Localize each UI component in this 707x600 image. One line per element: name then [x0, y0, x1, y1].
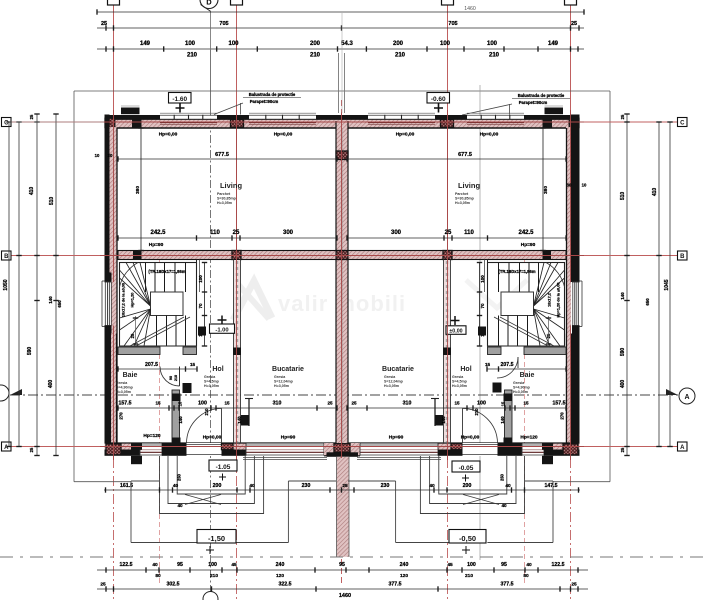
svg-text:H=3,05m: H=3,05m — [452, 384, 467, 388]
svg-text:H=3,05m: H=3,05m — [513, 390, 528, 394]
svg-text:45: 45 — [231, 562, 237, 568]
svg-text:A: A — [680, 445, 685, 451]
svg-text:380: 380 — [543, 186, 549, 194]
svg-text:Hp=90: Hp=90 — [521, 242, 536, 248]
svg-text:650: 650 — [645, 298, 650, 306]
svg-text:310: 310 — [403, 401, 412, 407]
svg-text:1045: 1045 — [664, 279, 670, 290]
svg-text:242.5: 242.5 — [150, 230, 166, 236]
svg-text:120: 120 — [400, 573, 408, 579]
svg-text:590: 590 — [27, 347, 33, 356]
svg-text:(TR.18Dx17=1,86m: (TR.18Dx17=1,86m — [498, 269, 535, 274]
svg-text:Bucatarie: Bucatarie — [272, 366, 304, 373]
svg-text:157.5: 157.5 — [553, 401, 566, 407]
svg-text:40: 40 — [177, 503, 183, 508]
svg-text:400: 400 — [48, 380, 54, 389]
svg-text:110: 110 — [210, 230, 220, 236]
svg-text:100: 100 — [487, 41, 498, 47]
svg-text:H=3,05m: H=3,05m — [217, 201, 232, 205]
svg-text:H=3,05m: H=3,05m — [274, 384, 289, 388]
svg-text:210: 210 — [395, 53, 406, 59]
svg-text:Parapet=90cm: Parapet=90cm — [519, 100, 548, 105]
svg-text:45: 45 — [447, 562, 453, 568]
svg-text:1460: 1460 — [464, 6, 476, 12]
svg-text:140: 140 — [237, 416, 242, 424]
svg-text:54.3: 54.3 — [341, 41, 353, 47]
svg-text:10: 10 — [95, 153, 100, 158]
svg-text:Hol: Hol — [212, 366, 223, 373]
svg-text:Hp=0,00: Hp=0,00 — [480, 132, 499, 138]
svg-text:Hp=120: Hp=120 — [520, 435, 538, 441]
svg-text:100: 100 — [185, 41, 196, 47]
svg-text:270: 270 — [560, 412, 565, 420]
svg-text:-1,50: -1,50 — [208, 534, 225, 543]
svg-text:Gresia: Gresia — [204, 375, 216, 379]
svg-text:377.5: 377.5 — [501, 582, 514, 588]
svg-text:147.5: 147.5 — [545, 483, 558, 489]
svg-text:Hp=90: Hp=90 — [149, 242, 164, 248]
svg-text:200: 200 — [463, 483, 472, 489]
svg-text:15: 15 — [523, 401, 529, 406]
svg-text:25: 25 — [620, 447, 625, 452]
svg-text:-1.00: -1.00 — [215, 328, 228, 334]
svg-text:Gresia: Gresia — [452, 375, 464, 379]
svg-text:Gresia: Gresia — [116, 381, 128, 385]
svg-text:-0.05: -0.05 — [459, 465, 474, 472]
svg-text:207.5: 207.5 — [145, 362, 158, 368]
svg-text:70: 70 — [480, 303, 485, 309]
svg-text:25: 25 — [130, 333, 135, 338]
svg-text:Parchet: Parchet — [455, 192, 469, 196]
svg-text:200: 200 — [213, 483, 222, 489]
svg-text:122.5: 122.5 — [552, 562, 565, 568]
svg-text:15: 15 — [224, 401, 230, 406]
svg-text:25: 25 — [342, 483, 348, 489]
svg-text:15: 15 — [190, 362, 196, 367]
svg-text:Living: Living — [220, 181, 243, 190]
svg-text:302.5: 302.5 — [167, 582, 180, 588]
svg-text:95: 95 — [177, 562, 183, 568]
svg-text:Hp=0,00: Hp=0,00 — [396, 132, 415, 138]
svg-text:242.5: 242.5 — [518, 230, 534, 236]
svg-text:25: 25 — [620, 114, 625, 119]
svg-text:210: 210 — [204, 408, 209, 416]
svg-text:90: 90 — [169, 376, 173, 380]
svg-text:Hp=120: Hp=120 — [143, 433, 161, 439]
svg-text:H=3,05m: H=3,05m — [384, 384, 399, 388]
svg-text:Balustrada de protectie: Balustrada de protectie — [249, 92, 296, 97]
svg-text:25: 25 — [101, 21, 107, 27]
svg-text:250: 250 — [500, 473, 505, 481]
svg-text:S=4,5mp: S=4,5mp — [452, 380, 468, 384]
svg-text:Baie: Baie — [123, 372, 138, 379]
svg-text:95: 95 — [339, 562, 345, 568]
svg-text:300: 300 — [391, 230, 402, 236]
svg-text:40: 40 — [249, 483, 255, 489]
svg-text:250: 250 — [177, 473, 182, 481]
svg-text:650: 650 — [57, 300, 62, 308]
svg-text:510: 510 — [620, 192, 626, 201]
svg-text:Hp=0,00: Hp=0,00 — [461, 435, 480, 441]
svg-text:149: 149 — [140, 41, 151, 47]
svg-text:200: 200 — [310, 41, 321, 47]
svg-text:30: 30 — [567, 183, 572, 188]
svg-text:310: 310 — [273, 401, 282, 407]
svg-text:110: 110 — [464, 230, 474, 236]
svg-text:B: B — [4, 254, 9, 260]
svg-text:100: 100 — [198, 275, 203, 283]
svg-text:D: D — [206, 0, 212, 7]
svg-text:25: 25 — [29, 447, 34, 452]
svg-text:100: 100 — [440, 41, 451, 47]
svg-text:210: 210 — [310, 53, 321, 59]
svg-text:Parapet=90cm: Parapet=90cm — [250, 99, 279, 104]
svg-text:H=3,05m: H=3,05m — [455, 201, 470, 205]
svg-text:15: 15 — [485, 362, 491, 367]
svg-text:40: 40 — [173, 483, 179, 489]
svg-text:100: 100 — [467, 562, 476, 568]
svg-text:(TR.18Dx17=1,86m: (TR.18Dx17=1,86m — [148, 269, 185, 274]
svg-text:149: 149 — [548, 41, 559, 47]
svg-text:230: 230 — [302, 483, 311, 489]
svg-text:157.5: 157.5 — [119, 401, 132, 407]
svg-text:210: 210 — [474, 408, 479, 416]
svg-text:Balustrada de protectie: Balustrada de protectie — [518, 93, 565, 98]
svg-text:400: 400 — [620, 380, 626, 389]
svg-text:Bucatarie: Bucatarie — [382, 366, 414, 373]
svg-text:Hp=1,20: Hp=1,20 — [131, 293, 135, 308]
svg-text:Hol: Hol — [460, 366, 471, 373]
svg-text:140: 140 — [441, 416, 446, 424]
svg-text:18x17,2: 18x17,2 — [548, 293, 552, 307]
svg-text:200: 200 — [393, 41, 404, 47]
svg-text:Hp=90: Hp=90 — [281, 435, 296, 441]
svg-text:100: 100 — [228, 41, 239, 47]
svg-text:140: 140 — [620, 292, 625, 300]
svg-text:210: 210 — [465, 573, 473, 579]
svg-text:25: 25 — [445, 230, 452, 236]
svg-text:140: 140 — [48, 296, 53, 304]
svg-text:100: 100 — [480, 275, 485, 283]
svg-text:H=3,05m: H=3,05m — [116, 390, 131, 394]
svg-text:300: 300 — [283, 230, 294, 236]
svg-text:A: A — [684, 394, 689, 401]
svg-text:270: 270 — [119, 412, 124, 420]
svg-text:H=3,05m: H=3,05m — [204, 384, 219, 388]
svg-text:Baie: Baie — [520, 372, 535, 379]
svg-text:15: 15 — [178, 401, 183, 406]
svg-text:Hp=90: Hp=90 — [389, 435, 404, 441]
svg-text:100: 100 — [198, 401, 207, 407]
svg-text:210: 210 — [489, 53, 500, 59]
svg-text:30: 30 — [108, 153, 113, 158]
svg-text:25: 25 — [351, 401, 357, 406]
svg-text:377.5: 377.5 — [389, 582, 402, 588]
svg-text:25: 25 — [29, 114, 34, 119]
svg-text:S=30,85mp: S=30,85mp — [455, 197, 475, 201]
svg-text:C: C — [680, 121, 685, 127]
svg-text:705: 705 — [219, 21, 228, 27]
svg-text:410: 410 — [652, 188, 658, 197]
svg-text:210: 210 — [187, 53, 198, 59]
svg-text:Hp=0,00: Hp=0,00 — [159, 132, 178, 138]
svg-text:210: 210 — [174, 375, 178, 381]
svg-text:80: 80 — [155, 573, 161, 579]
svg-text:S=12,04mp: S=12,04mp — [274, 380, 294, 384]
svg-text:S=30,85mp: S=30,85mp — [217, 197, 237, 201]
svg-text:25: 25 — [233, 230, 240, 236]
svg-text:Hp=1,20 de la ±0,00: Hp=1,20 de la ±0,00 — [557, 283, 561, 318]
svg-text:677.5: 677.5 — [215, 152, 229, 158]
svg-text:100: 100 — [208, 562, 217, 568]
svg-text:120: 120 — [276, 573, 284, 579]
svg-text:25: 25 — [100, 582, 106, 588]
svg-text:40: 40 — [429, 483, 435, 489]
svg-text:-1.60: -1.60 — [172, 96, 187, 103]
svg-text:1050: 1050 — [3, 279, 9, 290]
svg-text:B: B — [680, 254, 685, 260]
svg-text:15: 15 — [454, 401, 460, 406]
svg-text:410: 410 — [29, 187, 35, 196]
svg-text:S=4,90mp: S=4,90mp — [116, 386, 134, 390]
svg-text:705: 705 — [448, 21, 457, 27]
svg-text:±0,00: ±0,00 — [449, 329, 462, 335]
svg-text:140: 140 — [500, 416, 505, 424]
svg-text:Parchet: Parchet — [217, 192, 231, 196]
svg-text:S=12,04mp: S=12,04mp — [384, 380, 404, 384]
svg-text:15: 15 — [155, 401, 161, 406]
svg-text:-0,50: -0,50 — [459, 534, 476, 543]
svg-text:Hp=0,00: Hp=0,00 — [274, 132, 293, 138]
svg-text:70: 70 — [198, 303, 203, 309]
svg-text:207.5: 207.5 — [501, 362, 514, 368]
svg-text:80: 80 — [523, 573, 529, 579]
svg-text:240: 240 — [400, 562, 409, 568]
svg-text:S=4,90mp: S=4,90mp — [513, 386, 531, 390]
svg-text:10: 10 — [582, 183, 587, 188]
svg-text:Gresia: Gresia — [384, 375, 396, 379]
svg-text:18x17,2 de la ±0,00: 18x17,2 de la ±0,00 — [122, 283, 126, 317]
svg-text:230: 230 — [381, 483, 390, 489]
svg-text:677.5: 677.5 — [458, 152, 472, 158]
svg-text:40: 40 — [526, 562, 532, 568]
svg-text:380: 380 — [135, 186, 141, 194]
svg-text:140: 140 — [178, 416, 183, 424]
svg-text:Hp=0,00: Hp=0,00 — [203, 435, 222, 441]
svg-text:Gresia: Gresia — [274, 375, 286, 379]
svg-text:1460: 1460 — [339, 593, 351, 599]
svg-text:100: 100 — [477, 401, 486, 407]
svg-text:322.5: 322.5 — [279, 582, 292, 588]
svg-text:S=4,5mp: S=4,5mp — [204, 380, 220, 384]
svg-text:25: 25 — [571, 582, 577, 588]
svg-text:40: 40 — [501, 503, 507, 508]
svg-text:510: 510 — [49, 197, 55, 206]
svg-text:240: 240 — [276, 562, 285, 568]
svg-text:-1.05: -1.05 — [216, 464, 231, 471]
svg-text:95: 95 — [501, 562, 507, 568]
svg-text:25: 25 — [571, 21, 577, 27]
svg-text:-0.60: -0.60 — [431, 96, 446, 103]
svg-text:590: 590 — [620, 348, 626, 357]
svg-text:40: 40 — [505, 483, 511, 489]
svg-text:210: 210 — [210, 573, 218, 579]
svg-text:122.5: 122.5 — [120, 562, 133, 568]
svg-text:Living: Living — [458, 181, 481, 190]
svg-text:25: 25 — [327, 401, 333, 406]
svg-text:Gresia: Gresia — [513, 381, 525, 385]
svg-text:40: 40 — [152, 562, 158, 568]
